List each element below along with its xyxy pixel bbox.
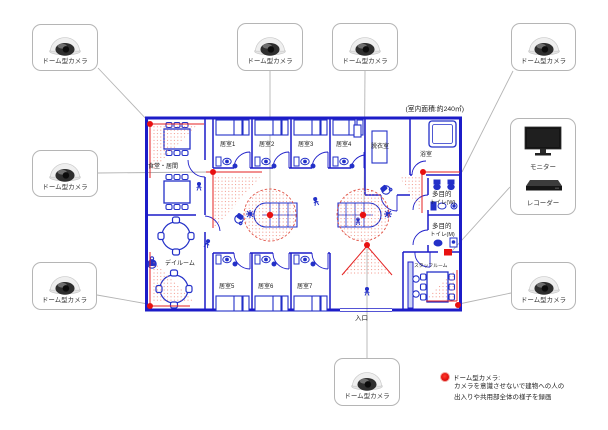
dome-camera-label: ドーム型カメラ	[342, 58, 387, 65]
dome-camera-card-right-lower: ドーム型カメラ	[511, 262, 576, 310]
dome-camera-label: ドーム型カメラ	[42, 184, 87, 191]
dome-camera-label: ドーム型カメラ	[521, 58, 566, 65]
recorder-icon	[522, 178, 564, 193]
room-label-room4: 居室4	[336, 140, 352, 148]
room-label-room1: 居室1	[220, 140, 236, 148]
room-label-bath: 浴室	[420, 150, 432, 158]
legend-line2: 出入りや共用部全体の様子を録画	[454, 393, 564, 404]
room-label-room5: 居室5	[219, 282, 235, 290]
area-note: (室内面積:約240㎡)	[388, 103, 464, 113]
dome-camera-icon	[45, 156, 85, 183]
dome-camera-icon	[524, 269, 564, 296]
dome-camera-card-left-lower: ドーム型カメラ	[32, 262, 97, 310]
dome-camera-label: ドーム型カメラ	[247, 58, 292, 65]
room-label-dressing: 脱衣室	[371, 142, 389, 150]
camera-layout-diagram: 食堂・居間 居室1 居室2 居室3 居室4 脱衣室 浴室 多目的 トイレ(W) …	[0, 0, 608, 430]
legend: ドーム型カメラ: カメラを意識させないで建物への人の 出入りや共用部全体の様子を…	[441, 372, 564, 403]
room-label-dining: 食堂・居間	[148, 162, 178, 170]
legend-dome-camera-dot	[441, 373, 449, 381]
legend-line1: カメラを意識させないで建物への人の	[454, 382, 564, 393]
room-label-staff: スタッフルーム	[414, 262, 448, 269]
room-label-wc-m-2: トイレ(M)	[430, 232, 455, 238]
dome-camera-label: ドーム型カメラ	[344, 393, 389, 400]
equipment-card: モニター レコーダー	[510, 118, 576, 215]
dome-camera-icon	[345, 30, 385, 57]
room-label-wc-w-2: トイレ(W)	[430, 200, 456, 206]
dome-camera-label: ドーム型カメラ	[521, 297, 566, 304]
dome-camera-label: ドーム型カメラ	[42, 58, 87, 65]
room-label-dayroom: デイルーム	[165, 259, 195, 267]
monitor-icon	[522, 126, 564, 157]
room-label-room2: 居室2	[259, 140, 275, 148]
dome-camera-icon	[347, 365, 387, 392]
dome-camera-card-top-center-left: ドーム型カメラ	[237, 23, 303, 71]
dome-camera-icon	[45, 269, 85, 296]
wheelchair-icon	[380, 183, 393, 196]
dome-camera-card-bottom-center: ドーム型カメラ	[334, 358, 400, 406]
room-label-room3: 居室3	[298, 140, 314, 148]
room-label-wc-m-1: 多目的	[432, 221, 452, 230]
dome-camera-icon	[524, 30, 564, 57]
room-label-room6: 居室6	[258, 282, 274, 290]
room-label-room7: 居室7	[297, 282, 313, 290]
dome-camera-card-top-left: ドーム型カメラ	[32, 24, 98, 71]
dome-camera-card-top-right: ドーム型カメラ	[511, 23, 576, 71]
monitor-label: モニター	[530, 164, 556, 171]
dome-camera-icon	[250, 30, 290, 57]
dome-camera-card-left-upper: ドーム型カメラ	[32, 150, 98, 197]
dome-camera-card-top-center-right: ドーム型カメラ	[332, 23, 398, 71]
room-label-wc-w-1: 多目的	[432, 189, 452, 198]
dome-camera-icon	[45, 30, 85, 57]
legend-title: ドーム型カメラ:	[453, 372, 500, 382]
recorder-label: レコーダー	[527, 200, 560, 207]
entrance-label: 入口	[355, 314, 368, 322]
dome-camera-label: ドーム型カメラ	[42, 297, 87, 304]
